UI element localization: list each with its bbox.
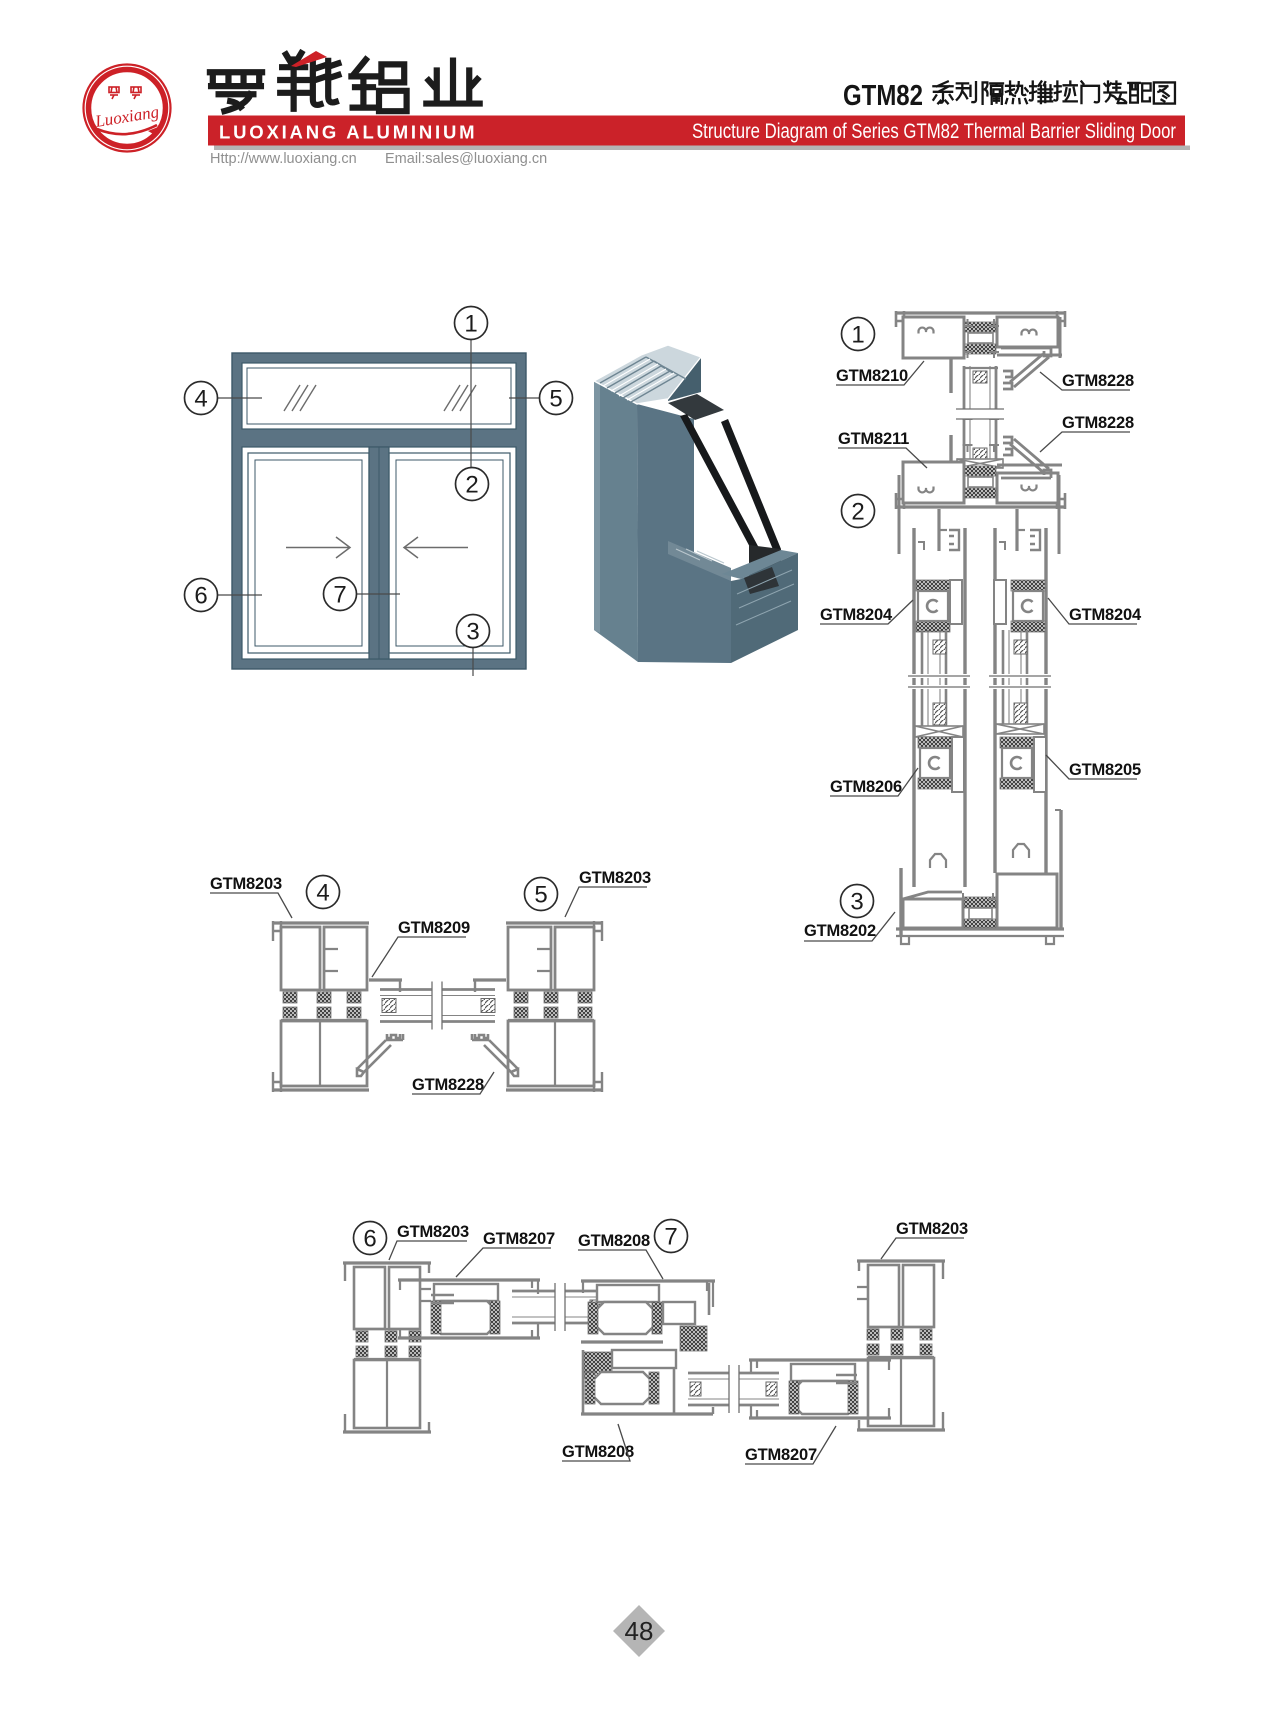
svg-text:GTM8208: GTM8208: [562, 1443, 634, 1461]
svg-text:2: 2: [465, 471, 478, 498]
svg-text:GTM8202: GTM8202: [804, 922, 876, 940]
svg-text:3: 3: [466, 618, 479, 645]
svg-text:GTM8205: GTM8205: [1069, 761, 1141, 779]
svg-text:GTM8206: GTM8206: [830, 778, 902, 796]
svg-text:GTM8209: GTM8209: [398, 919, 470, 937]
svg-text:7: 7: [664, 1223, 677, 1250]
svg-text:6: 6: [194, 582, 207, 609]
svg-text:GTM8207: GTM8207: [483, 1230, 555, 1248]
svg-text:GTM8208: GTM8208: [578, 1232, 650, 1250]
svg-text:GTM8228: GTM8228: [412, 1076, 484, 1094]
svg-text:GTM8228: GTM8228: [1062, 372, 1134, 390]
svg-text:1: 1: [464, 310, 477, 337]
svg-text:Email:sales@luoxiang.cn: Email:sales@luoxiang.cn: [385, 151, 547, 167]
svg-text:GTM8203: GTM8203: [210, 875, 282, 893]
svg-text:GTM8228: GTM8228: [1062, 414, 1134, 432]
svg-text:1: 1: [851, 321, 864, 348]
svg-text:GTM8210: GTM8210: [836, 367, 908, 385]
svg-text:GTM8204: GTM8204: [1069, 606, 1142, 624]
svg-text:Structure Diagram of Series GT: Structure Diagram of Series GTM82 Therma…: [692, 120, 1176, 143]
svg-text:GTM8207: GTM8207: [745, 1446, 817, 1464]
svg-text:5: 5: [549, 385, 562, 412]
svg-text:4: 4: [194, 385, 207, 412]
svg-text:48: 48: [625, 1616, 654, 1646]
svg-text:LUOXIANG ALUMINIUM: LUOXIANG ALUMINIUM: [219, 122, 477, 143]
svg-text:3: 3: [850, 888, 863, 915]
svg-text:7: 7: [333, 581, 346, 608]
svg-text:4: 4: [316, 879, 329, 906]
svg-text:GTM82: GTM82: [843, 80, 923, 112]
svg-text:2: 2: [851, 498, 864, 525]
svg-text:GTM8203: GTM8203: [397, 1223, 469, 1241]
svg-text:GTM8203: GTM8203: [896, 1220, 968, 1238]
svg-text:GTM8203: GTM8203: [579, 869, 651, 887]
svg-text:Http://www.luoxiang.cn: Http://www.luoxiang.cn: [210, 151, 357, 167]
svg-text:5: 5: [534, 881, 547, 908]
svg-text:GTM8211: GTM8211: [838, 430, 909, 448]
svg-text:6: 6: [363, 1225, 376, 1252]
svg-text:GTM8204: GTM8204: [820, 606, 893, 624]
